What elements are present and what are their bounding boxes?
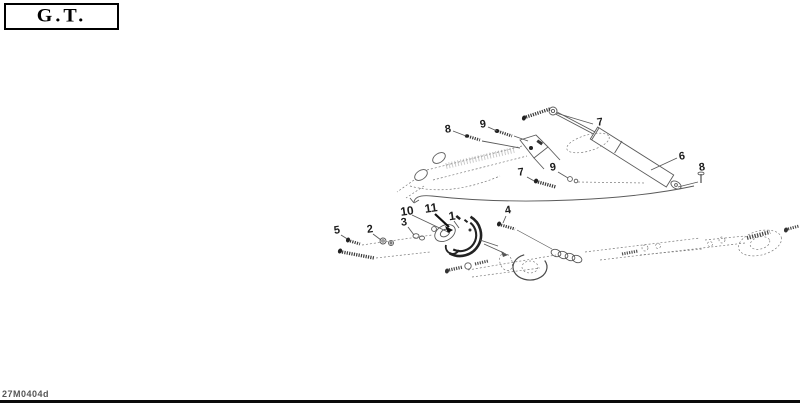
callout-11: 11 xyxy=(424,201,438,215)
figure-code: 27M0404d xyxy=(2,389,49,399)
exploded-parts-diagram xyxy=(0,0,800,403)
callout-1: 1 xyxy=(448,210,456,223)
